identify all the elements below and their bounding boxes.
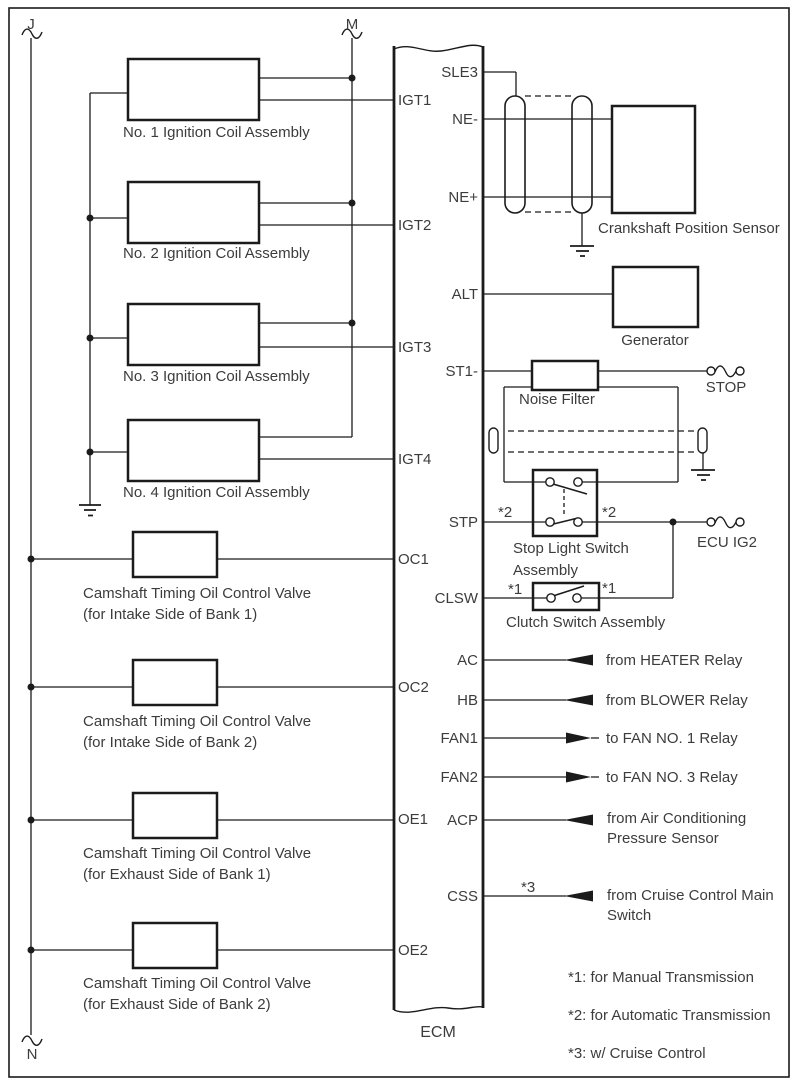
- noise-filter-label: Noise Filter: [519, 391, 595, 408]
- bus-label-m: M: [346, 16, 359, 33]
- crank-sensor-shield-dashes: [525, 96, 572, 212]
- ecu-ig2-connector-icon: [707, 517, 744, 528]
- oil-valve-4-label-line1: Camshaft Timing Oil Control Valve: [83, 975, 311, 992]
- flag-star2-right: *2: [602, 504, 616, 521]
- pin-label-ne-minus: NE-: [452, 111, 478, 128]
- ignition-coil-4-label: No. 4 Ignition Coil Assembly: [123, 484, 310, 501]
- generator-label: Generator: [621, 332, 689, 349]
- pin-label-st1: ST1-: [445, 363, 478, 380]
- flag-star3: *3: [521, 879, 535, 896]
- ground-icon: [570, 246, 594, 256]
- oil-valve-1-label-line1: Camshaft Timing Oil Control Valve: [83, 585, 311, 602]
- flag-star1-left: *1: [508, 581, 522, 598]
- stop-connector-label: STOP: [706, 379, 747, 396]
- stop-light-switch-label-line1: Stop Light Switch: [513, 540, 629, 557]
- pin-label-oe1: OE1: [398, 811, 428, 828]
- arrow-left-icon: [564, 695, 593, 706]
- oil-valve-2-box: [133, 660, 217, 705]
- arrow-left-icon: [564, 815, 593, 826]
- arrow-label-acp-line1: from Air Conditioning: [607, 810, 746, 827]
- oil-valve-2-label-line1: Camshaft Timing Oil Control Valve: [83, 713, 311, 730]
- noise-shield-dashes: [508, 431, 696, 452]
- oil-valve-3-label-line1: Camshaft Timing Oil Control Valve: [83, 845, 311, 862]
- pin-label-hb: HB: [457, 692, 478, 709]
- bus-label-n: N: [27, 1046, 38, 1063]
- crank-sensor-box: [612, 106, 695, 213]
- pin-label-igt2: IGT2: [398, 217, 431, 234]
- pin-label-igt1: IGT1: [398, 92, 431, 109]
- wiring-diagram-page: J M N ECM IGT1 IGT2 IGT3 IGT4 OC1 OC2 OE…: [0, 0, 802, 1085]
- flag-star2-left: *2: [498, 504, 512, 521]
- arrow-label-fan3-relay: to FAN NO. 3 Relay: [606, 769, 738, 786]
- stop-light-switch-box: [533, 470, 597, 536]
- note-star2: *2: for Automatic Transmission: [568, 1007, 771, 1024]
- ecu-ig2-label: ECU IG2: [697, 534, 757, 551]
- shield-capsule-small: [489, 428, 498, 453]
- arrow-label-acp-line2: Pressure Sensor: [607, 830, 719, 847]
- pin-label-css: CSS: [447, 888, 478, 905]
- arrow-right-icon: [566, 733, 591, 744]
- pin-label-igt3: IGT3: [398, 339, 431, 356]
- break-symbol: [22, 1036, 42, 1045]
- shield-capsule: [572, 96, 592, 213]
- generator-box: [613, 267, 698, 327]
- direction-arrows: [564, 655, 593, 902]
- ignition-coil-3-box: [128, 304, 259, 365]
- crank-sensor-label: Crankshaft Position Sensor: [598, 220, 780, 237]
- ignition-coil-2-box: [128, 182, 259, 243]
- clutch-switch-box: [533, 583, 599, 610]
- noise-filter-box: [532, 361, 598, 390]
- pin-label-alt: ALT: [452, 286, 478, 303]
- oil-valve-1-label-line2: (for Intake Side of Bank 1): [83, 606, 257, 623]
- ignition-coil-1-label: No. 1 Ignition Coil Assembly: [123, 124, 310, 141]
- oil-valve-2-label-line2: (for Intake Side of Bank 2): [83, 734, 257, 751]
- oil-valve-4-box: [133, 923, 217, 968]
- stop-connector-icon: [707, 366, 744, 377]
- note-star3: *3: w/ Cruise Control: [568, 1045, 706, 1062]
- pin-label-stp: STP: [449, 514, 478, 531]
- ecm-wiring-diagram: J M N ECM IGT1 IGT2 IGT3 IGT4 OC1 OC2 OE…: [0, 0, 802, 1085]
- ignition-coil-3-label: No. 3 Ignition Coil Assembly: [123, 368, 310, 385]
- pin-label-oe2: OE2: [398, 942, 428, 959]
- pin-label-igt4: IGT4: [398, 451, 431, 468]
- ground-icon: [79, 505, 101, 516]
- oil-valve-3-box: [133, 793, 217, 838]
- pin-label-oc1: OC1: [398, 551, 429, 568]
- pin-label-ac: AC: [457, 652, 478, 669]
- arrow-label-css-line2: Switch: [607, 907, 651, 924]
- ignition-coil-1-box: [128, 59, 259, 120]
- pin-label-fan2: FAN2: [440, 769, 478, 786]
- pin-label-ne-plus: NE+: [448, 189, 478, 206]
- arrow-label-css-line1: from Cruise Control Main: [607, 887, 774, 904]
- stop-light-switch-label-line2: Assembly: [513, 562, 579, 579]
- shield-capsule: [505, 96, 525, 213]
- ignition-coil-4-box: [128, 420, 259, 481]
- arrow-left-icon: [564, 655, 593, 666]
- pin-label-clsw: CLSW: [435, 590, 479, 607]
- flag-star1-right: *1: [602, 580, 616, 597]
- ignition-coil-2-label: No. 2 Ignition Coil Assembly: [123, 245, 310, 262]
- arrow-label-blower-relay: from BLOWER Relay: [606, 692, 748, 709]
- arrow-label-heater-relay: from HEATER Relay: [606, 652, 743, 669]
- ground-icon: [691, 470, 715, 480]
- arrow-right-icon: [566, 772, 591, 783]
- ecm-label: ECM: [420, 1024, 456, 1041]
- oil-valve-4-label-line2: (for Exhaust Side of Bank 2): [83, 996, 271, 1013]
- pin-label-fan1: FAN1: [440, 730, 478, 747]
- note-star1: *1: for Manual Transmission: [568, 969, 754, 986]
- pin-label-oc2: OC2: [398, 679, 429, 696]
- arrow-left-icon: [564, 891, 593, 902]
- oil-valve-3-label-line2: (for Exhaust Side of Bank 1): [83, 866, 271, 883]
- pin-label-acp: ACP: [447, 812, 478, 829]
- clutch-switch-label: Clutch Switch Assembly: [506, 614, 666, 631]
- bus-label-j: J: [27, 16, 35, 33]
- arrow-label-fan1-relay: to FAN NO. 1 Relay: [606, 730, 738, 747]
- pin-label-sle3: SLE3: [441, 64, 478, 81]
- shield-capsule-small: [698, 428, 707, 453]
- oil-valve-1-box: [133, 532, 217, 577]
